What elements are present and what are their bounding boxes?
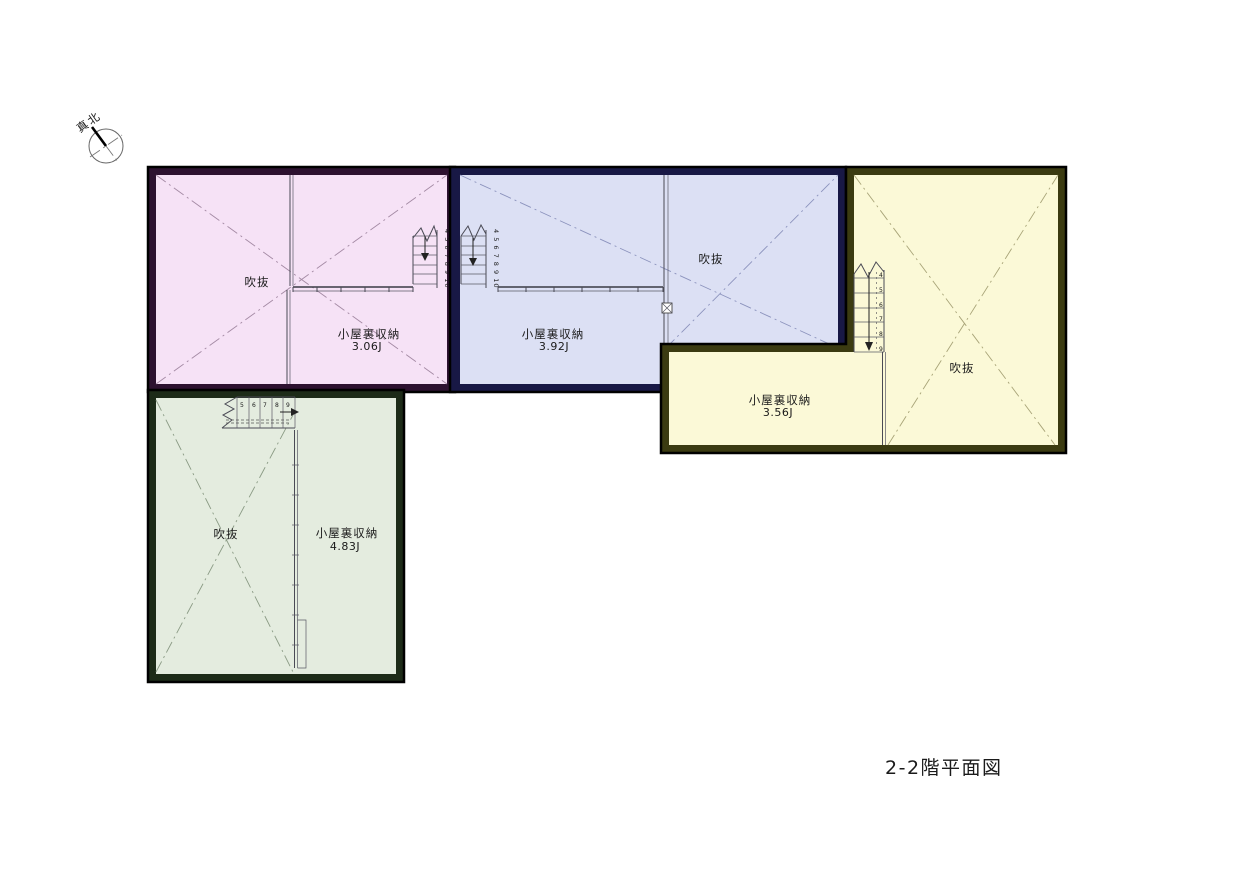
storage-area-value: 3.06J: [352, 340, 382, 353]
storage-label: 小屋裏収納: [316, 526, 379, 540]
void-label: 吹抜: [950, 361, 975, 375]
stair-number: 5: [879, 287, 883, 294]
stair-number: 9: [879, 346, 883, 353]
void-label: 吹抜: [699, 252, 724, 266]
storage-label: 小屋裏収納: [749, 393, 812, 407]
storage-area-value: 3.92J: [539, 340, 569, 353]
stair-number: 6: [879, 302, 883, 309]
region-green: 5 6 7 8 9 吹抜 小屋裏収納 4.83J: [148, 390, 404, 682]
north-indicator: 真北: [74, 109, 123, 163]
storage-area-value: 4.83J: [330, 540, 360, 553]
north-pointer: [92, 127, 106, 146]
stair-number: 8: [275, 402, 279, 409]
stair-number: 5: [240, 402, 244, 409]
stair-number: 8: [879, 331, 883, 338]
storage-label: 小屋裏収納: [522, 327, 585, 341]
region-pink: 4 5 6 7 8 9 10 吹抜 小屋裏収納 3.06J: [148, 167, 455, 392]
floor-plan-drawing: 真北: [0, 0, 1250, 884]
stair-number: 9: [286, 402, 290, 409]
void-label: 吹抜: [245, 275, 270, 289]
north-label: 真北: [74, 109, 104, 136]
storage-area-value: 3.56J: [763, 406, 793, 419]
stair-number: 7: [879, 316, 883, 323]
storage-label: 小屋裏収納: [338, 327, 401, 341]
stair-number: 6: [252, 402, 256, 409]
floor-plan-page: 真北: [0, 0, 1250, 884]
stair-numbers: 4 5 6 7 8 9 10: [492, 229, 500, 288]
void-label: 吹抜: [214, 527, 239, 541]
stair-number: 7: [263, 402, 267, 409]
stair-number: 4: [879, 272, 883, 279]
drawing-title: 2-2階平面図: [885, 757, 1003, 779]
north-axis-line: [106, 146, 118, 162]
